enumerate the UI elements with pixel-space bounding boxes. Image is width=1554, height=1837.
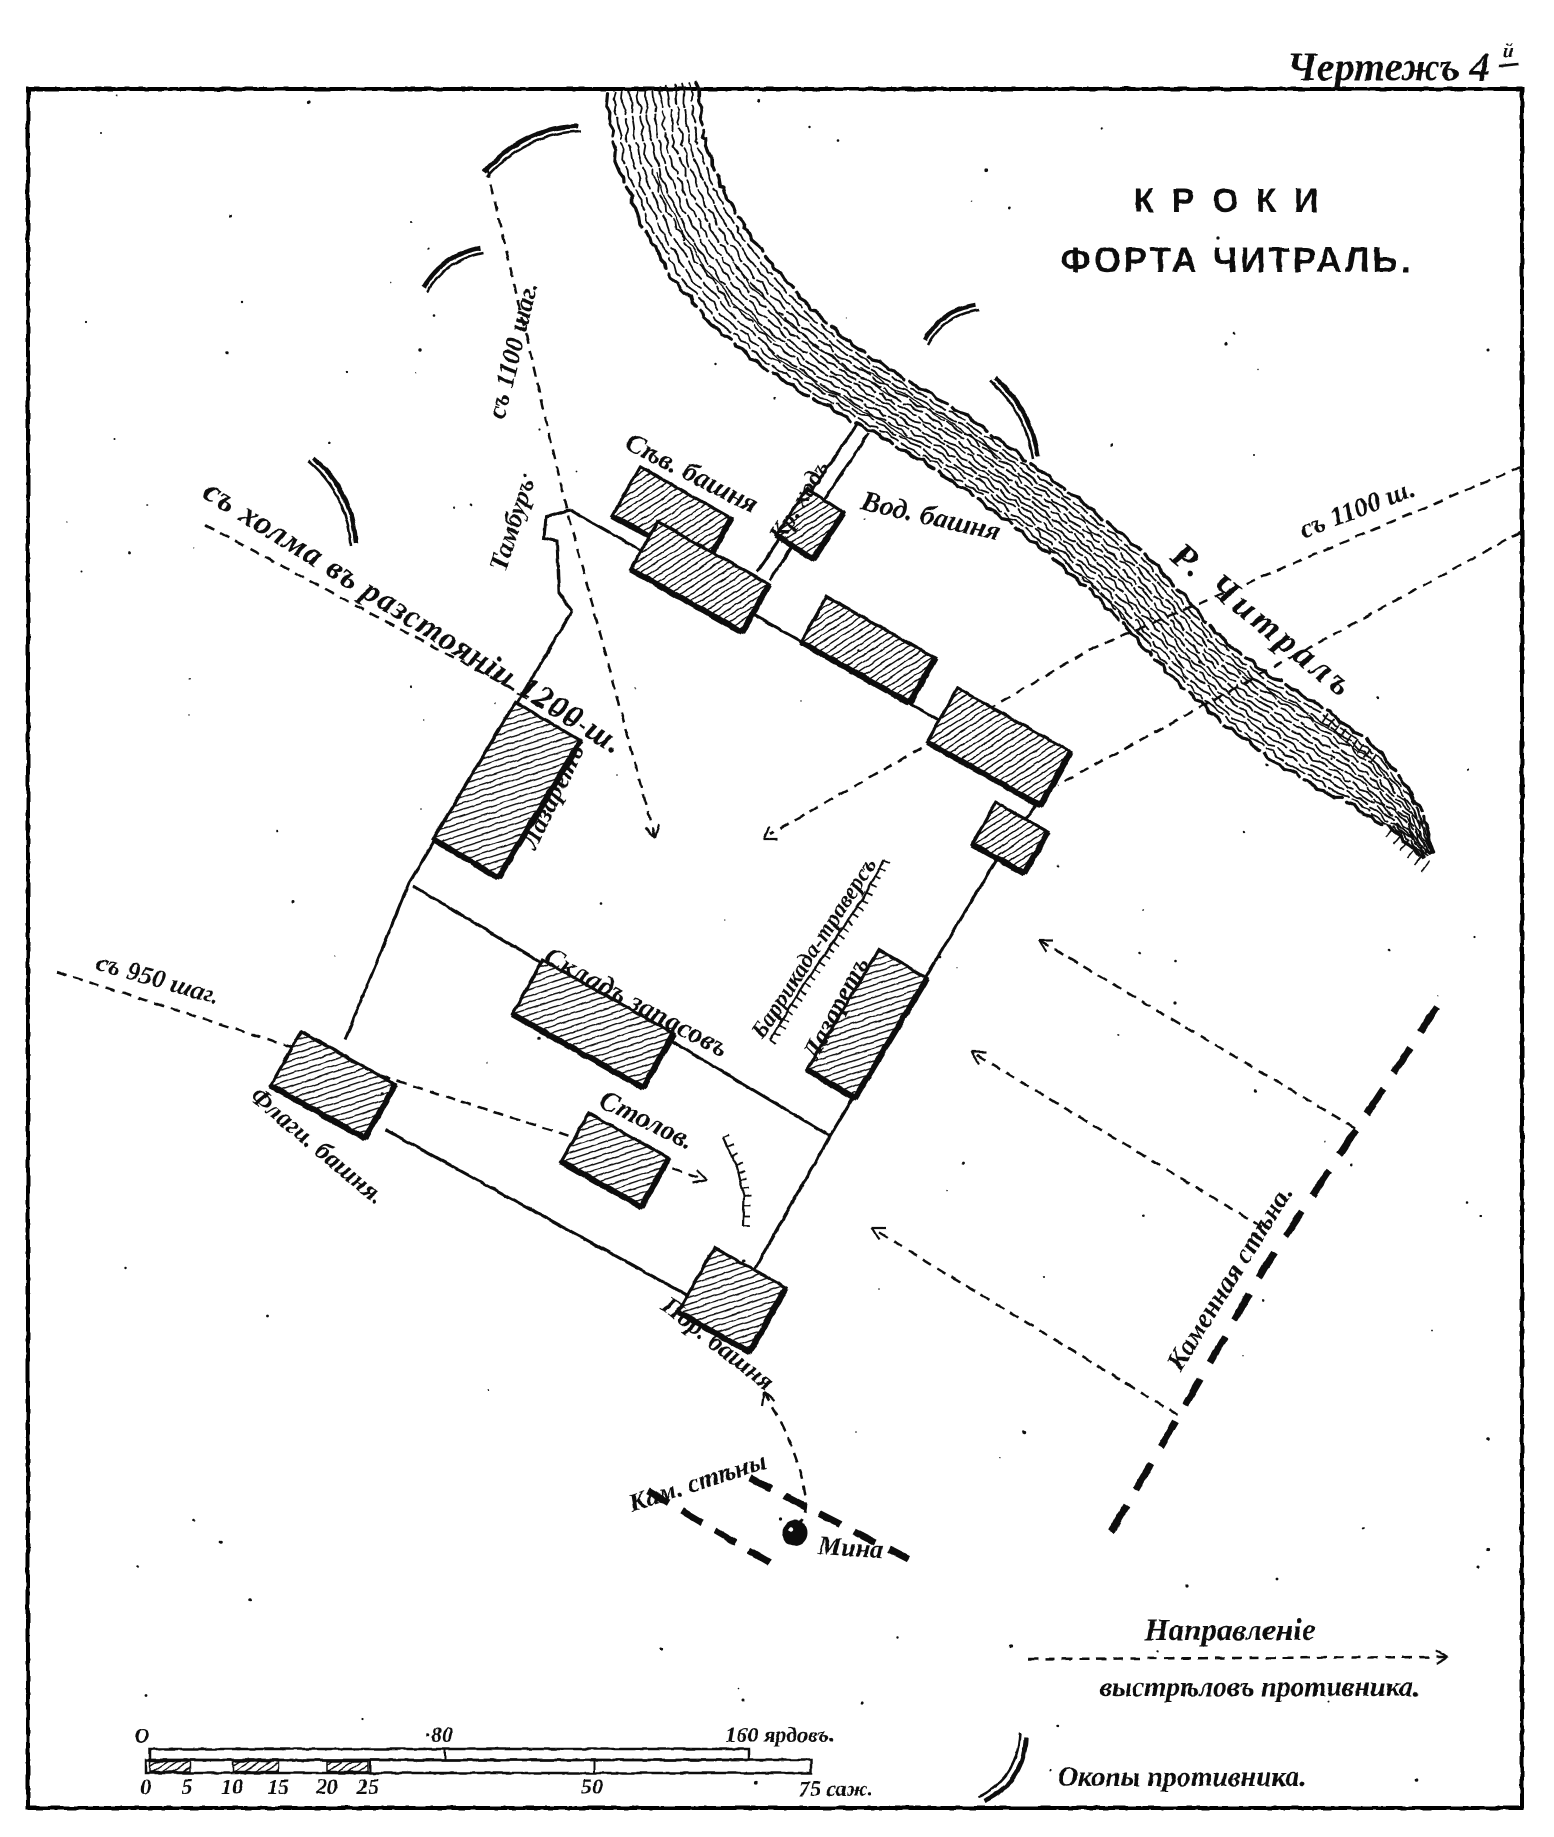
- svg-text:выстрѣловъ противника.: выстрѣловъ противника.: [1100, 1672, 1420, 1703]
- svg-text:5: 5: [182, 1774, 193, 1799]
- svg-text:50: 50: [581, 1774, 603, 1799]
- svg-text:ФОРТА ЧИТРАЛЬ.: ФОРТА ЧИТРАЛЬ.: [1061, 241, 1414, 280]
- svg-text:Чертежъ 4: Чертежъ 4: [1287, 44, 1490, 89]
- svg-text:80: 80: [431, 1722, 453, 1747]
- svg-text:К Р О К И: К Р О К И: [1134, 182, 1323, 220]
- svg-text:10: 10: [221, 1774, 243, 1799]
- svg-text:й: й: [1503, 41, 1514, 62]
- svg-text:Мина: Мина: [816, 1531, 884, 1565]
- svg-text:20: 20: [315, 1774, 338, 1799]
- svg-text:O: O: [134, 1723, 150, 1748]
- svg-text:25: 25: [356, 1774, 379, 1799]
- svg-text:160 ярдовъ.: 160 ярдовъ.: [725, 1722, 834, 1747]
- svg-text:75 саж.: 75 саж.: [799, 1776, 873, 1801]
- svg-text:Окопы противника.: Окопы противника.: [1058, 1762, 1306, 1793]
- svg-text:Направленіе: Направленіе: [1144, 1612, 1316, 1647]
- svg-text:0: 0: [141, 1774, 152, 1799]
- svg-text:15: 15: [267, 1774, 289, 1799]
